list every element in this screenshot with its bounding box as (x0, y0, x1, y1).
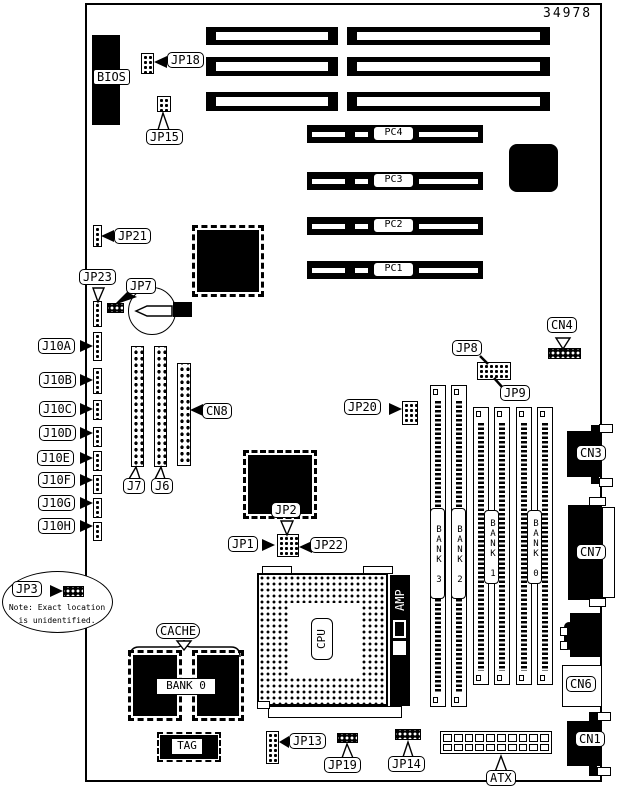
atx-pin (540, 744, 549, 752)
j10a-label: J10A (38, 338, 75, 354)
atx-pin (540, 734, 549, 742)
atx-pin (519, 734, 528, 742)
j10d-label: J10D (39, 425, 76, 441)
j7-label: J7 (123, 478, 145, 494)
cpu-socket-lever (268, 706, 402, 718)
audio-jack-connector (570, 613, 602, 657)
isa-slot-contact (216, 97, 328, 106)
jp8-label: JP8 (452, 340, 482, 356)
j6-connector (154, 346, 167, 467)
j10d-pointer (80, 427, 93, 439)
cpu-label: CPU (311, 618, 333, 660)
atx-pin (465, 734, 474, 742)
audio-jack-tab-1 (560, 627, 568, 636)
j10h-jumper (93, 522, 102, 541)
jp19-jumper (337, 733, 358, 743)
atx-pin (508, 744, 517, 752)
isa-slot-contact (357, 62, 540, 71)
j10c-jumper (93, 400, 102, 420)
amp-slot-outline (393, 620, 406, 638)
cn3-label: CN3 (576, 445, 606, 461)
cn7-label: CN7 (576, 544, 606, 560)
jp8-jp9-jumper (477, 362, 511, 380)
atx-pin (508, 734, 517, 742)
j10f-pointer (80, 474, 93, 486)
amp-label: AMP (390, 577, 410, 623)
jp13-jumper (266, 731, 279, 764)
pci-slot-label: PC2 (373, 218, 414, 233)
isa-slot-contact (216, 32, 328, 40)
bios-label: BIOS (93, 69, 130, 85)
j10h-pointer (80, 520, 93, 532)
pci-slot-label: PC3 (373, 173, 414, 188)
jp2-label: JP2 (271, 502, 301, 518)
j10g-pointer (80, 497, 93, 509)
jp20-jumper (402, 401, 418, 425)
jp15-jumper (157, 96, 171, 112)
isa-slot-3-left (206, 92, 338, 111)
isa-slot-2-right (347, 57, 550, 76)
atx-pin (454, 744, 463, 752)
isa-slot-1-left (206, 27, 338, 45)
cn1-label: CN1 (575, 731, 605, 747)
jp22-label: JP22 (310, 537, 347, 553)
atx-pin (486, 734, 495, 742)
isa-slot-2-left (206, 57, 338, 76)
atx-label: ATX (486, 770, 516, 786)
jp3-note-line1: Note: Exact location (4, 601, 110, 614)
jp21-pointer (101, 230, 114, 242)
atx-pin (475, 734, 484, 742)
jp23-label: JP23 (79, 269, 116, 285)
jp3-pointer (50, 585, 63, 597)
jp14-jumper (395, 729, 421, 740)
isa-slot-contact (357, 97, 540, 106)
atx-pin (519, 744, 528, 752)
isa-slot-1-right (347, 27, 550, 45)
pci-slot-label: PC4 (373, 126, 414, 141)
atx-pin (465, 744, 474, 752)
j10f-label: J10F (38, 472, 75, 488)
jp7-label: JP7 (126, 278, 156, 294)
j10e-jumper (93, 451, 102, 471)
atx-pin (454, 734, 463, 742)
pci-slot-pc2: PC2 (307, 217, 483, 235)
jp9-label: JP9 (500, 385, 530, 401)
j10g-jumper (93, 498, 102, 518)
jp18-jumper (141, 53, 154, 74)
cn3-tab-bottom-nub (591, 477, 599, 484)
j10a-jumper (93, 332, 102, 361)
jp19-label: JP19 (324, 757, 361, 773)
j6-label: J6 (151, 478, 173, 494)
bank2-label: BANK 2 (451, 508, 466, 599)
cn1-tab-bottom (597, 767, 611, 776)
chipset-qfp-chip (197, 230, 259, 292)
j10f-jumper (93, 475, 102, 494)
atx-pin (529, 744, 538, 752)
bank3-label: BANK 3 (430, 508, 445, 599)
pci-slot-pc1: PC1 (307, 261, 483, 279)
cn4-connector (548, 348, 581, 359)
cache-label: CACHE (156, 623, 200, 639)
j10g-label: J10G (38, 495, 75, 511)
j10h-label: J10H (38, 518, 75, 534)
jp1-jp22-jumper (277, 534, 299, 557)
cn8-connector (177, 363, 191, 466)
atx-pin (497, 734, 506, 742)
jp14-label: JP14 (388, 756, 425, 772)
jp3-jumper (63, 586, 84, 597)
jp18-label: JP18 (167, 52, 204, 68)
jp1-label: JP1 (228, 536, 258, 552)
cn4-label: CN4 (547, 317, 577, 333)
amp-slot-fill (393, 641, 406, 655)
j7-connector (131, 346, 144, 467)
jp7-jumper (107, 303, 124, 313)
atx-pin (443, 744, 452, 752)
j10d-jumper (93, 427, 102, 447)
jp13-label: JP13 (289, 733, 326, 749)
jp3-note-line2: is unidentified. (4, 614, 110, 627)
cn3-tab-bottom (599, 478, 613, 487)
battery-terminal (173, 302, 192, 317)
pci-slot-pc4: PC4 (307, 125, 483, 143)
cn1-tab-top-nub (589, 712, 597, 721)
j10e-pointer (80, 452, 93, 464)
isa-slot-contact (216, 62, 328, 71)
audio-jack-tab-2 (560, 641, 568, 650)
cn8-label: CN8 (202, 403, 232, 419)
atx-pin (475, 744, 484, 752)
jp20-pointer (389, 403, 402, 415)
cn1-tab-bottom-nub (589, 766, 597, 776)
jp23-jumper (93, 301, 102, 327)
battery (128, 287, 176, 335)
bank1-label: BANK 1 (484, 510, 499, 584)
cn3-tab-top-nub (591, 425, 599, 432)
bank0-label: BANK 0 (527, 510, 542, 584)
atx-pin (486, 744, 495, 752)
atx-pin (497, 744, 506, 752)
jp18-pointer (154, 56, 167, 68)
cn6-label: CN6 (566, 676, 596, 692)
isa-slot-3-right (347, 92, 550, 111)
tag-label: TAG (171, 738, 203, 755)
cn3-tab-top (599, 424, 613, 433)
jp20-label: JP20 (344, 399, 381, 415)
jp1-pointer (262, 539, 275, 551)
atx-power-connector (440, 731, 552, 754)
j10b-pointer (80, 374, 93, 386)
cn7-screw-bottom (589, 598, 606, 607)
j10c-label: J10C (39, 401, 76, 417)
pci-slot-pc3: PC3 (307, 172, 483, 190)
motherboard-diagram: 34978 BIOS JP18 JP15 PC4 PC3 PC2 PC1 JP2… (0, 0, 617, 791)
jp15-label: JP15 (146, 129, 183, 145)
isa-slot-contact (357, 32, 540, 40)
controller-chip (509, 144, 558, 192)
pci-slot-label: PC1 (373, 262, 414, 277)
j10b-label: J10B (39, 372, 76, 388)
j10c-pointer (80, 403, 93, 415)
cpu-socket-notch (257, 701, 270, 709)
jp13-pointer (279, 736, 289, 748)
cpu-socket-tab-right (363, 566, 393, 574)
j10a-pointer (80, 340, 93, 352)
j10b-jumper (93, 368, 102, 394)
document-number: 34978 (543, 6, 592, 21)
atx-pin (443, 734, 452, 742)
atx-pin (529, 734, 538, 742)
cache-bank-label: BANK 0 (156, 678, 216, 695)
cn1-tab-top (597, 712, 611, 721)
jp3-label: JP3 (12, 581, 42, 597)
j10e-label: J10E (37, 450, 74, 466)
cpu-socket-tab-left (262, 566, 292, 574)
jp21-label: JP21 (114, 228, 151, 244)
